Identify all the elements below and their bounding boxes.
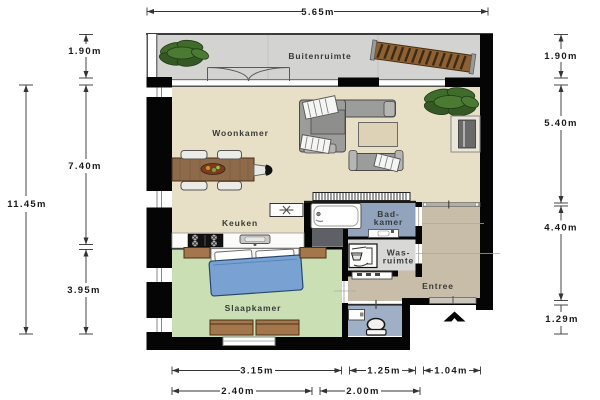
svg-text:4.40m: 4.40m <box>544 223 577 234</box>
svg-text:2.40m: 2.40m <box>221 386 254 397</box>
svg-text:1.90m: 1.90m <box>68 46 101 57</box>
svg-text:1.25m: 1.25m <box>367 366 400 377</box>
svg-text:3.15m: 3.15m <box>240 366 273 377</box>
svg-text:Entree: Entree <box>422 281 454 291</box>
svg-text:Woonkamer: Woonkamer <box>212 128 269 138</box>
svg-text:2.00m: 2.00m <box>346 386 379 397</box>
svg-text:11.45m: 11.45m <box>7 199 47 210</box>
svg-text:7.40m: 7.40m <box>68 161 101 172</box>
svg-text:kamer: kamer <box>374 217 404 227</box>
svg-text:5.40m: 5.40m <box>544 118 577 129</box>
svg-text:1.04m: 1.04m <box>434 366 467 377</box>
svg-text:Buitenruimte: Buitenruimte <box>288 51 351 61</box>
svg-text:ruimte: ruimte <box>383 256 414 266</box>
svg-text:Keuken: Keuken <box>222 218 258 228</box>
svg-text:1.29m: 1.29m <box>545 314 578 325</box>
svg-text:3.95m: 3.95m <box>67 285 100 296</box>
svg-text:Slaapkamer: Slaapkamer <box>225 303 282 313</box>
svg-text:5.65m: 5.65m <box>301 7 334 18</box>
svg-text:1.90m: 1.90m <box>544 51 577 62</box>
